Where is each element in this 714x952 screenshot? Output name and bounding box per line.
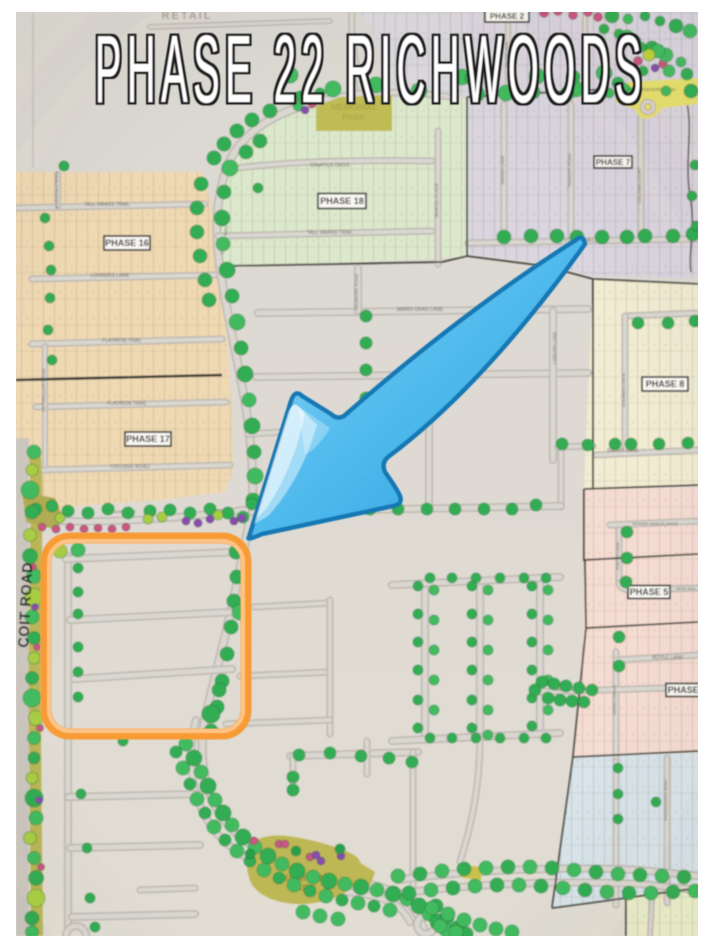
svg-text:PHASE 22 RICHWOODS: PHASE 22 RICHWOODS xyxy=(95,16,647,123)
